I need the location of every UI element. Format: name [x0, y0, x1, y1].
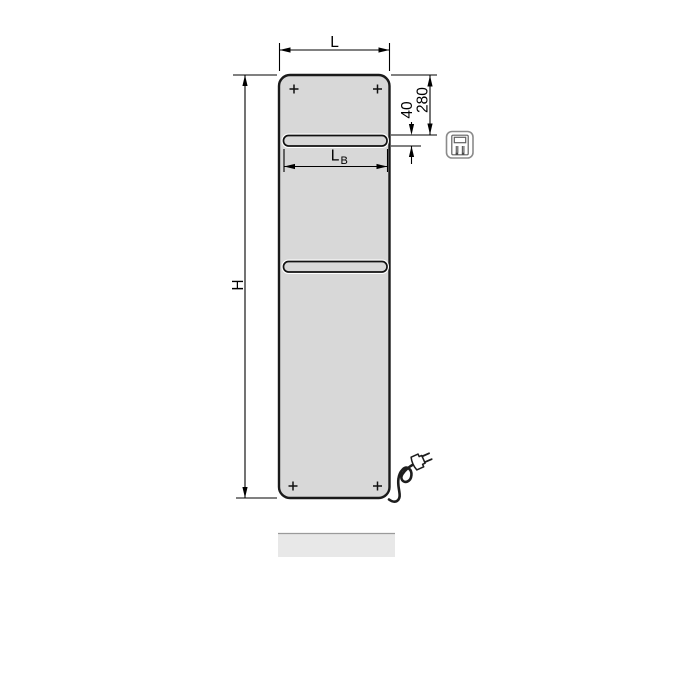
towel-rail-slot-top: [284, 136, 388, 147]
floor-shadow: [278, 533, 395, 557]
dimension-label-width: L: [330, 34, 339, 51]
dimension-label-rail-width-subscript: B: [341, 155, 348, 167]
power-plug-icon: [389, 450, 433, 502]
technical-drawing-canvas: L H 280 40 L B: [0, 0, 700, 700]
dimension-overall-height: H: [230, 75, 277, 498]
dimension-overall-width: L: [280, 34, 390, 71]
dimension-label-rail-width: L: [331, 148, 340, 165]
electric-plug-icon: [447, 132, 474, 159]
dimension-label-height: H: [230, 279, 247, 290]
towel-rail-slot-bottom: [284, 262, 388, 273]
radiator-dimension-diagram: L H 280 40 L B: [0, 0, 700, 700]
dimension-label-top-offset: 280: [415, 87, 432, 113]
dimension-label-rail-thickness: 40: [399, 101, 416, 119]
